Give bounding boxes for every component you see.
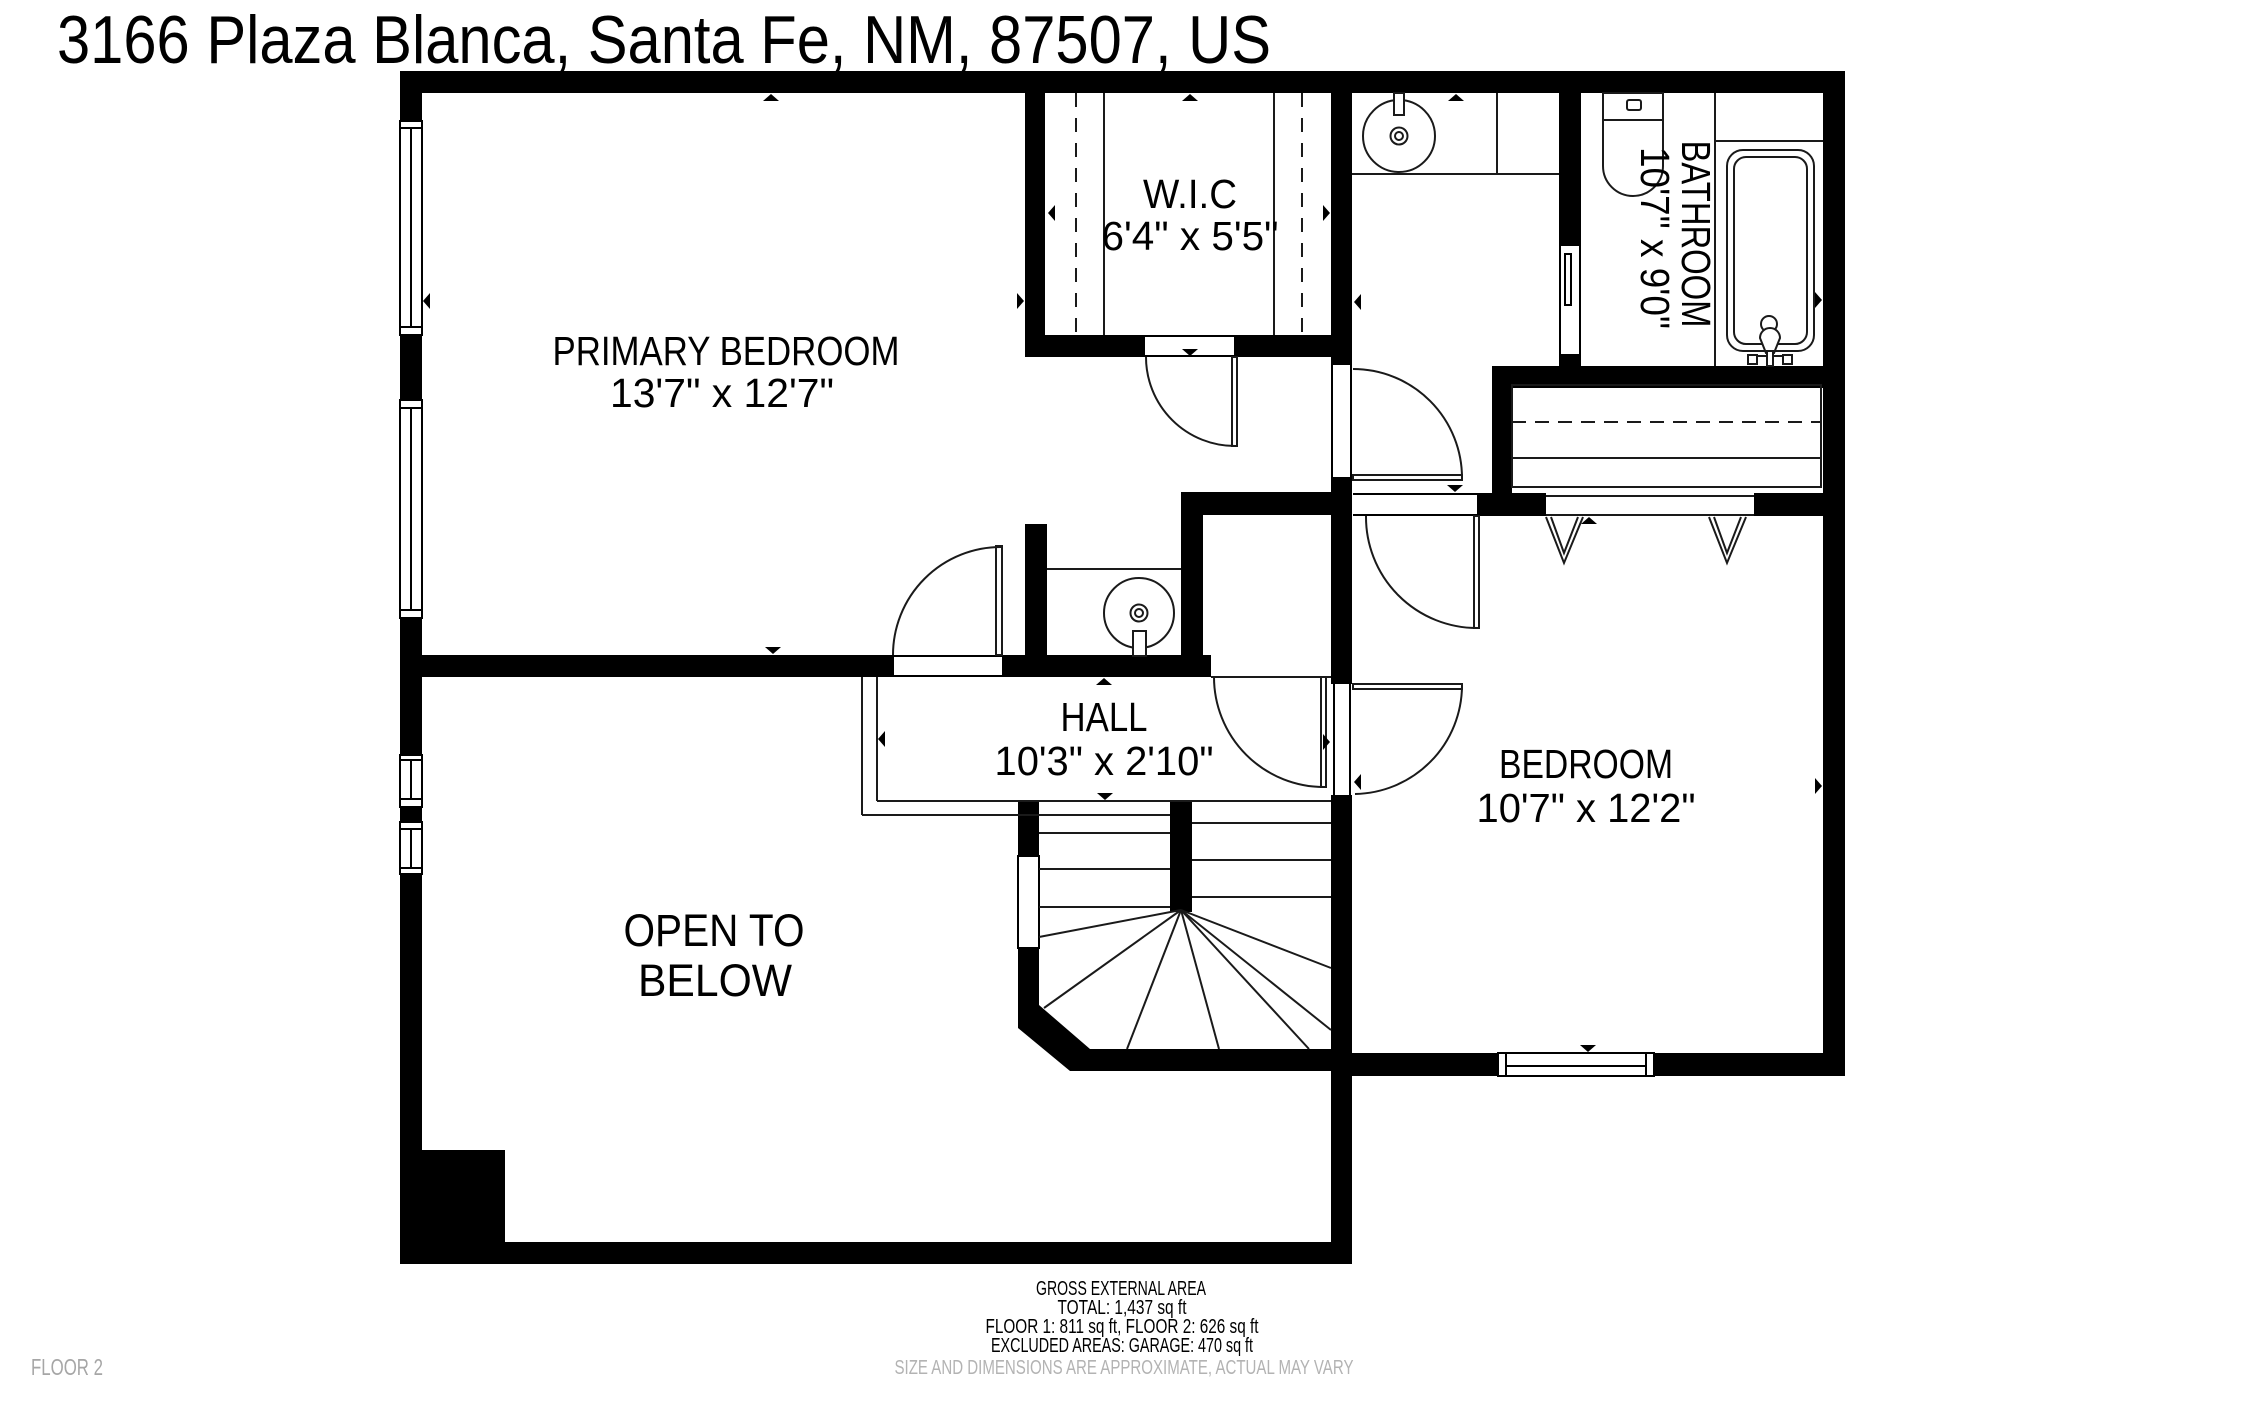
- svg-text:FLOOR 2: FLOOR 2: [31, 1354, 103, 1380]
- svg-text:10'7" x 9'0": 10'7" x 9'0": [1632, 147, 1678, 329]
- svg-text:BEDROOM: BEDROOM: [1499, 741, 1673, 787]
- svg-text:BATHROOM: BATHROOM: [1673, 141, 1719, 328]
- svg-text:W.I.C: W.I.C: [1143, 171, 1237, 217]
- svg-text:10'3" x 2'10": 10'3" x 2'10": [995, 738, 1214, 784]
- svg-text:13'7" x 12'7": 13'7" x 12'7": [610, 370, 834, 416]
- svg-text:6'4" x 5'5": 6'4" x 5'5": [1102, 213, 1279, 259]
- svg-text:10'7" x 12'2": 10'7" x 12'2": [1477, 785, 1696, 831]
- svg-text:SIZE AND DIMENSIONS ARE APPROX: SIZE AND DIMENSIONS ARE APPROXIMATE, ACT…: [895, 1357, 1354, 1379]
- svg-text:BELOW: BELOW: [638, 955, 792, 1006]
- svg-text:3166 Plaza Blanca, Santa Fe, N: 3166 Plaza Blanca, Santa Fe, NM, 87507, …: [57, 2, 1271, 78]
- svg-text:OPEN TO: OPEN TO: [624, 905, 805, 956]
- svg-text:HALL: HALL: [1061, 694, 1148, 740]
- svg-text:EXCLUDED AREAS: GARAGE: 470 sq: EXCLUDED AREAS: GARAGE: 470 sq ft: [991, 1335, 1253, 1357]
- svg-text:PRIMARY BEDROOM: PRIMARY BEDROOM: [553, 328, 900, 374]
